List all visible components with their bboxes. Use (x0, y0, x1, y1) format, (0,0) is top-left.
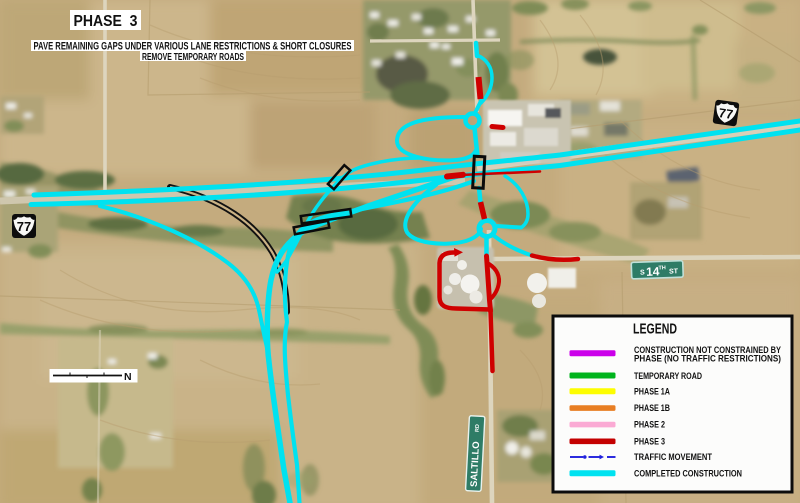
svg-text:TH: TH (658, 265, 666, 271)
svg-text:PHASE 1B: PHASE 1B (634, 403, 670, 413)
svg-text:PHASE 3: PHASE 3 (74, 13, 138, 30)
svg-text:COMPLETED CONSTRUCTION: COMPLETED CONSTRUCTION (634, 469, 742, 479)
svg-text:77: 77 (17, 219, 31, 234)
svg-text:REMOVE TEMPORARY ROADS: REMOVE TEMPORARY ROADS (142, 52, 244, 63)
svg-text:77: 77 (718, 105, 734, 122)
svg-text:LEGEND: LEGEND (633, 322, 677, 338)
svg-text:PHASE 1A: PHASE 1A (634, 387, 670, 397)
svg-text:PHASE 3: PHASE 3 (634, 436, 665, 446)
svg-text:RD: RD (475, 424, 481, 432)
svg-text:N: N (124, 371, 132, 383)
svg-text:TRAFFIC MOVEMENT: TRAFFIC MOVEMENT (634, 452, 712, 462)
svg-text:PHASE (NO TRAFFIC RESTRICTIONS: PHASE (NO TRAFFIC RESTRICTIONS) (634, 354, 781, 364)
svg-text:PHASE 2: PHASE 2 (634, 420, 665, 430)
svg-text:PAVE REMAINING GAPS UNDER VARI: PAVE REMAINING GAPS UNDER VARIOUS LANE R… (34, 41, 352, 53)
svg-text:TEMPORARY ROAD: TEMPORARY ROAD (634, 371, 702, 381)
svg-text:S: S (640, 269, 645, 276)
svg-text:ST: ST (669, 268, 679, 275)
